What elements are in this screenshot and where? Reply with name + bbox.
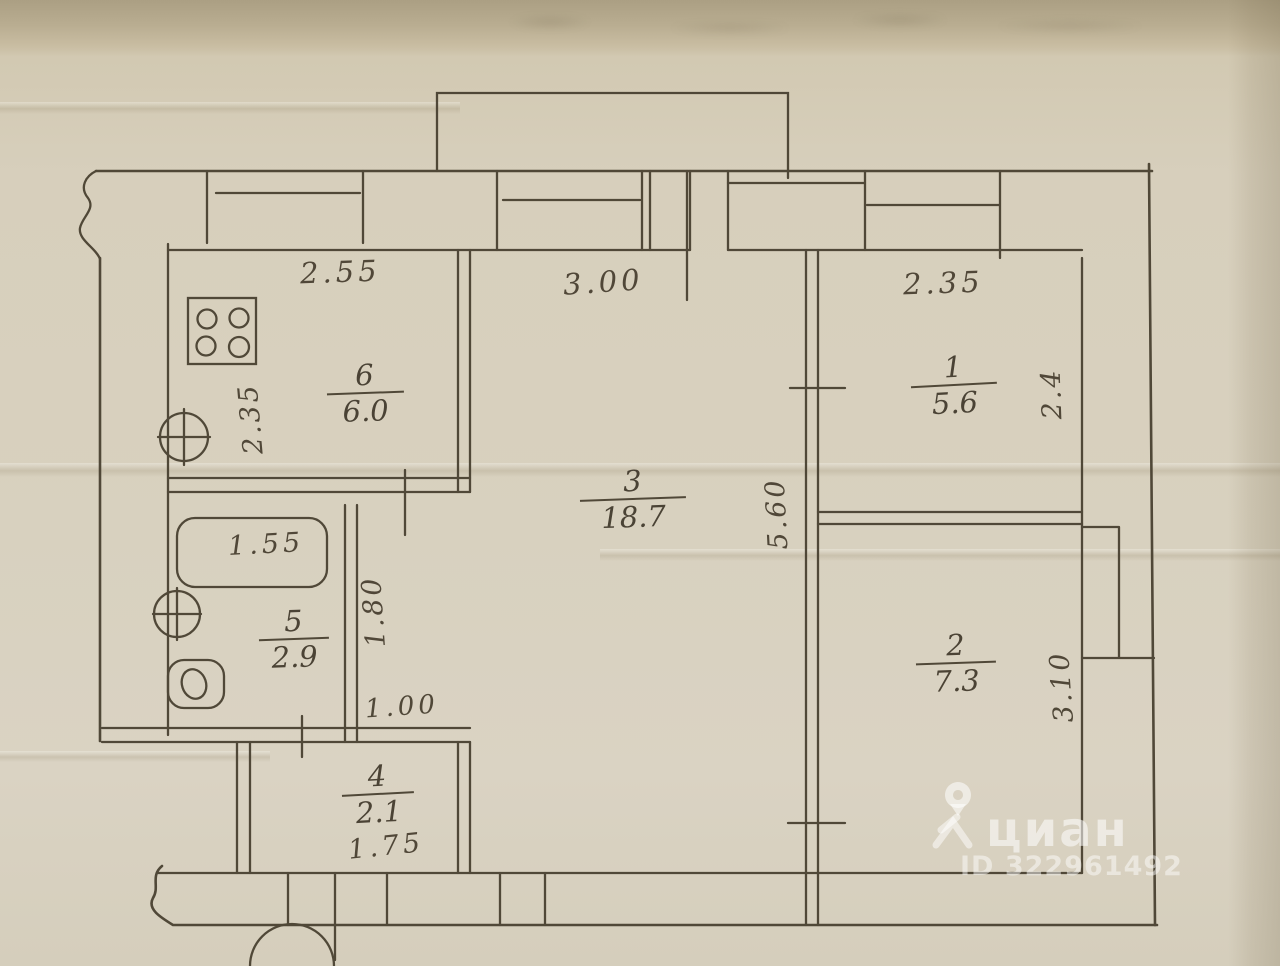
dim-room3-depth: 5.60 xyxy=(759,463,795,564)
balcony xyxy=(437,93,788,178)
window-room2-right xyxy=(1082,527,1154,658)
room-number: 4 xyxy=(367,762,387,792)
room-number: 1 xyxy=(943,353,963,383)
window-room3 xyxy=(497,171,642,250)
room-area: 6.0 xyxy=(342,395,389,428)
entry-door-arc xyxy=(250,924,334,966)
stove-icon xyxy=(188,298,256,364)
dim-room2-depth: 3.10 xyxy=(1043,640,1080,734)
room-area: 2.1 xyxy=(355,796,403,830)
dim-room1-width: 2.35 xyxy=(902,265,984,302)
room-label-bathroom: 5 2.9 xyxy=(261,606,327,675)
dim-room3-width: 3.00 xyxy=(562,262,645,302)
room-area: 7.3 xyxy=(933,665,980,698)
balcony-door-jambs xyxy=(650,171,728,250)
window-room1 xyxy=(867,171,1000,258)
wall-break-top-left xyxy=(80,171,100,259)
room-area: 18.7 xyxy=(601,501,667,535)
toilet-icon xyxy=(168,660,224,708)
dim-kitchen-width: 2.55 xyxy=(299,254,381,291)
dim-bathroom-depth: 1.80 xyxy=(355,565,392,659)
hall-top-wall xyxy=(102,728,470,742)
rooms-1-2-partition xyxy=(818,512,1082,524)
bathroom-right-wall xyxy=(345,505,357,742)
dim-room1-depth: 2.4 xyxy=(1035,353,1069,434)
room-number: 6 xyxy=(355,361,374,391)
room-area: 5.6 xyxy=(931,387,979,421)
wall-segment xyxy=(728,171,865,250)
kitchen-sink-icon xyxy=(158,409,210,465)
hall-right-wall xyxy=(458,742,470,873)
room-label-hall: 4 2.1 xyxy=(343,760,412,830)
wall-break-bottom-left xyxy=(151,866,1157,925)
room-number: 2 xyxy=(946,631,965,661)
room-label-room3: 3 18.7 xyxy=(584,465,682,535)
window-kitchen xyxy=(207,171,363,243)
kitchen-right-wall xyxy=(458,250,470,492)
hall-left-wall xyxy=(237,742,250,873)
room-area: 2.9 xyxy=(271,641,318,674)
room-number: 5 xyxy=(284,607,303,637)
floor-plan-photo: 2.55 3.00 2.35 1.55 1.00 1.75 2.35 2.4 5… xyxy=(0,0,1280,966)
bottom-wall-openings xyxy=(288,873,545,960)
room-number: 3 xyxy=(623,467,642,497)
room-label-room2: 2 7.3 xyxy=(919,630,993,699)
room-label-kitchen: 6 6.0 xyxy=(329,360,401,429)
bathroom-sink-icon xyxy=(153,588,201,640)
kitchen-bottom-wall xyxy=(168,478,470,492)
dim-bathtub-length: 1.55 xyxy=(227,527,305,562)
room-label-room1: 1 5.6 xyxy=(913,351,994,422)
dim-hall-opening: 1.00 xyxy=(364,689,440,724)
